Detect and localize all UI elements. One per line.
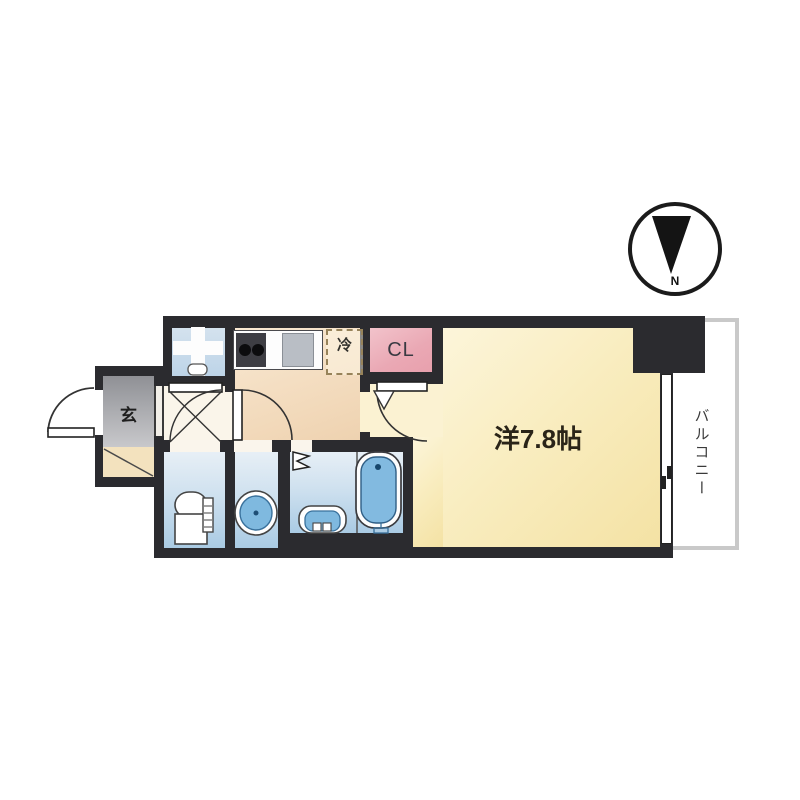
compass-north-label: N — [663, 273, 687, 289]
kitchen-doorway-floor — [225, 392, 235, 440]
entrance-step — [103, 447, 154, 477]
balcony-label: バルコニー — [687, 383, 715, 523]
entrance-label: 玄 — [103, 398, 154, 428]
entrance-door-icon — [48, 388, 94, 437]
wall-cl-right — [432, 320, 443, 384]
toilet-room — [164, 452, 225, 548]
hallway — [164, 386, 225, 440]
window-sash-mark-1 — [662, 476, 666, 489]
wall-v4-lower — [225, 440, 235, 558]
wall-under-washer — [163, 376, 234, 386]
main-room-label: 洋7.8帖 — [453, 420, 623, 454]
main-room-lower-left — [413, 437, 443, 547]
bathroom-doorway — [291, 440, 312, 452]
alcove-doorway-floor — [360, 392, 370, 432]
floorplan-canvas: 冷 — [0, 0, 800, 800]
closet-label: CL — [370, 334, 432, 366]
washroom-doorway — [234, 440, 272, 452]
wall-cl-bottom — [360, 372, 443, 384]
washroom — [235, 452, 278, 548]
stove-icon — [236, 333, 266, 367]
kitchen-sink-icon — [282, 333, 314, 367]
bathroom — [290, 452, 403, 533]
balcony-window — [661, 374, 672, 544]
room-entry-alcove — [370, 384, 443, 437]
wall-bath-bottom — [283, 533, 413, 558]
refrigerator-label: 冷 — [337, 334, 352, 355]
wall-bottom-main — [403, 547, 673, 558]
refrigerator-space: 冷 — [326, 329, 363, 375]
wall-bottom-left — [154, 548, 290, 558]
window-sash-mark-2 — [667, 466, 671, 479]
wall-genkan-left-a — [95, 366, 103, 390]
toilet-doorway — [170, 440, 220, 452]
washer-pan-cross-v — [191, 327, 205, 376]
wall-genkan-top — [95, 366, 172, 376]
entrance-step-edge — [154, 386, 164, 436]
